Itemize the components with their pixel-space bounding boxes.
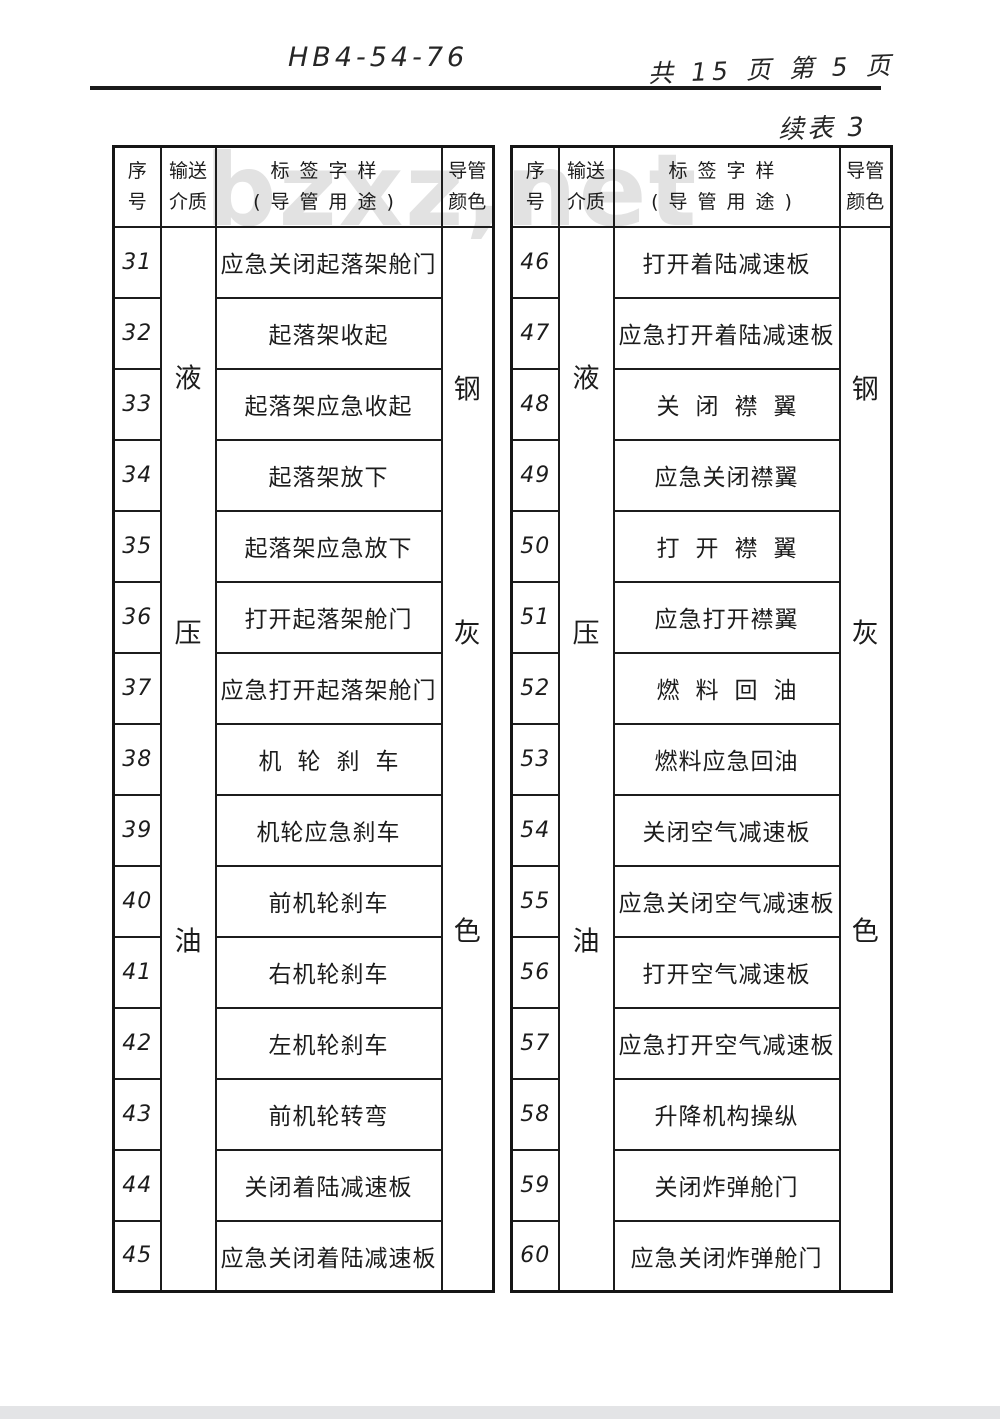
scan-edge-strip [0, 1406, 1000, 1419]
col-header-color-line1: 导管 [443, 156, 493, 186]
row-number: 53 [512, 724, 559, 795]
pipe-purpose-label: 应急关闭着陆减速板 [216, 1221, 442, 1292]
col-header-color-line2: 颜色 [443, 187, 493, 217]
row-number: 34 [114, 440, 161, 511]
pipe-purpose-label: 关闭着陆减速板 [216, 1150, 442, 1221]
table-row: 31液压油应急关闭起落架舱门钢灰色 [114, 227, 494, 298]
header-rule [90, 86, 881, 90]
color-char: 灰 [852, 612, 879, 651]
row-number: 58 [512, 1079, 559, 1150]
color-char: 钢 [852, 367, 879, 406]
row-number: 36 [114, 582, 161, 653]
table-body: 46液压油打开着陆减速板钢灰色47应急打开着陆减速板48关闭襟翼49应急关闭襟翼… [512, 227, 892, 1292]
row-number: 48 [512, 369, 559, 440]
page-count-info: 共 15 页 第 5 页 [647, 46, 896, 91]
col-header-label-line1: 标签字样 [615, 156, 839, 186]
pipe-purpose-label: 起落架应急收起 [216, 369, 442, 440]
row-number: 43 [114, 1079, 161, 1150]
col-header-medium-line1: 输送 [162, 156, 215, 186]
col-header-serial-line1: 序 [115, 156, 160, 186]
pipe-purpose-label: 打开起落架舱门 [216, 582, 442, 653]
pipe-purpose-label: 打开着陆减速板 [614, 227, 840, 298]
pipe-purpose-label: 打开襟翼 [614, 511, 840, 582]
medium-char: 压 [175, 612, 202, 651]
col-header-medium-line2: 介质 [560, 187, 613, 217]
pipe-purpose-label: 应急关闭起落架舱门 [216, 227, 442, 298]
row-number: 46 [512, 227, 559, 298]
row-number: 56 [512, 937, 559, 1008]
medium-char: 液 [573, 357, 600, 396]
col-header-medium-line2: 介质 [162, 187, 215, 217]
row-number: 45 [114, 1221, 161, 1292]
row-number: 40 [114, 866, 161, 937]
pipe-purpose-label: 关闭襟翼 [614, 369, 840, 440]
col-header-color-line2: 颜色 [841, 187, 891, 217]
row-number: 47 [512, 298, 559, 369]
col-header-serial-line2: 号 [115, 187, 160, 217]
row-number: 38 [114, 724, 161, 795]
pipe-label-table-right: 序 号 输送 介质 标签字样 (导管用途) 导管 颜色 46液压油打开着陆减速板… [510, 145, 893, 1293]
pipe-label-table-left: 序 号 输送 介质 标签字样 (导管用途) 导管 颜色 31液压油应急关闭起落架… [112, 145, 495, 1293]
col-header-color: 导管 颜色 [442, 147, 494, 227]
pipe-purpose-label: 右机轮刹车 [216, 937, 442, 1008]
medium-merged-cell: 液压油 [161, 227, 216, 1292]
row-number: 59 [512, 1150, 559, 1221]
col-header-color: 导管 颜色 [840, 147, 892, 227]
color-char: 色 [852, 909, 879, 948]
pipe-purpose-label: 起落架收起 [216, 298, 442, 369]
col-header-serial-line1: 序 [513, 156, 558, 186]
table-header: 序 号 输送 介质 标签字样 (导管用途) 导管 颜色 [512, 147, 892, 227]
col-header-serial: 序 号 [114, 147, 161, 227]
pipe-purpose-label: 起落架放下 [216, 440, 442, 511]
pipe-purpose-label: 应急关闭襟翼 [614, 440, 840, 511]
row-number: 31 [114, 227, 161, 298]
document-number: HB4-54-76 [288, 42, 468, 73]
col-header-label-line2: (导管用途) [217, 187, 441, 217]
row-number: 52 [512, 653, 559, 724]
row-number: 35 [114, 511, 161, 582]
medium-char: 液 [175, 357, 202, 396]
medium-merged-cell: 液压油 [559, 227, 614, 1292]
scanned-document-page: bzxz,net HB4-54-76 共 15 页 第 5 页 续表 3 序 号… [0, 0, 1000, 1419]
pipe-purpose-label: 应急打开起落架舱门 [216, 653, 442, 724]
row-number: 57 [512, 1008, 559, 1079]
table-row: 46液压油打开着陆减速板钢灰色 [512, 227, 892, 298]
col-header-serial-line2: 号 [513, 187, 558, 217]
col-header-label: 标签字样 (导管用途) [216, 147, 442, 227]
medium-char: 油 [573, 920, 600, 959]
medium-char: 压 [573, 612, 600, 651]
pipe-purpose-label: 应急打开襟翼 [614, 582, 840, 653]
row-number: 60 [512, 1221, 559, 1292]
pipe-purpose-label: 燃料回油 [614, 653, 840, 724]
row-number: 51 [512, 582, 559, 653]
row-number: 32 [114, 298, 161, 369]
pipe-purpose-label: 机轮应急刹车 [216, 795, 442, 866]
row-number: 50 [512, 511, 559, 582]
continuation-table-label: 续表 3 [777, 106, 867, 146]
pipe-purpose-label: 应急打开着陆减速板 [614, 298, 840, 369]
table-header: 序 号 输送 介质 标签字样 (导管用途) 导管 颜色 [114, 147, 494, 227]
row-number: 41 [114, 937, 161, 1008]
row-number: 55 [512, 866, 559, 937]
color-merged-cell: 钢灰色 [840, 227, 892, 1292]
col-header-medium-line1: 输送 [560, 156, 613, 186]
row-number: 54 [512, 795, 559, 866]
pipe-purpose-label: 前机轮刹车 [216, 866, 442, 937]
col-header-medium: 输送 介质 [161, 147, 216, 227]
row-number: 49 [512, 440, 559, 511]
color-merged-cell: 钢灰色 [442, 227, 494, 1292]
pipe-purpose-label: 左机轮刹车 [216, 1008, 442, 1079]
color-char: 钢 [454, 367, 481, 406]
pipe-purpose-label: 应急关闭炸弹舱门 [614, 1221, 840, 1292]
col-header-label: 标签字样 (导管用途) [614, 147, 840, 227]
pipe-purpose-label: 关闭空气减速板 [614, 795, 840, 866]
col-header-label-line2: (导管用途) [615, 187, 839, 217]
color-char: 色 [454, 909, 481, 948]
row-number: 39 [114, 795, 161, 866]
table-body: 31液压油应急关闭起落架舱门钢灰色32起落架收起33起落架应急收起34起落架放下… [114, 227, 494, 1292]
color-char: 灰 [454, 612, 481, 651]
medium-char: 油 [175, 920, 202, 959]
pipe-purpose-label: 燃料应急回油 [614, 724, 840, 795]
row-number: 42 [114, 1008, 161, 1079]
pipe-purpose-label: 起落架应急放下 [216, 511, 442, 582]
col-header-serial: 序 号 [512, 147, 559, 227]
pipe-purpose-label: 前机轮转弯 [216, 1079, 442, 1150]
col-header-medium: 输送 介质 [559, 147, 614, 227]
pipe-purpose-label: 应急打开空气减速板 [614, 1008, 840, 1079]
col-header-color-line1: 导管 [841, 156, 891, 186]
pipe-purpose-label: 机轮刹车 [216, 724, 442, 795]
col-header-label-line1: 标签字样 [217, 156, 441, 186]
pipe-purpose-label: 打开空气减速板 [614, 937, 840, 1008]
pipe-purpose-label: 应急关闭空气减速板 [614, 866, 840, 937]
row-number: 44 [114, 1150, 161, 1221]
pipe-purpose-label: 升降机构操纵 [614, 1079, 840, 1150]
row-number: 37 [114, 653, 161, 724]
pipe-purpose-label: 关闭炸弹舱门 [614, 1150, 840, 1221]
row-number: 33 [114, 369, 161, 440]
